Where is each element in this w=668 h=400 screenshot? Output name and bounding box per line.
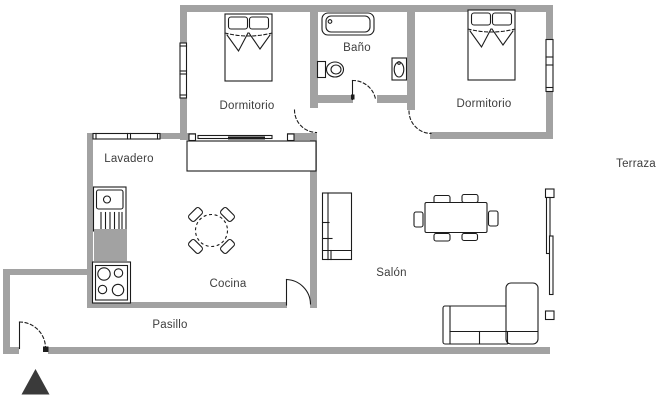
room-label-bano: Baño [343, 42, 371, 54]
washbasin-icon [392, 58, 407, 80]
round-table-chairs-icon [188, 207, 236, 255]
cabinet-icon [323, 193, 352, 260]
double-bed-icon [468, 10, 515, 80]
dining-table-chairs-icon [414, 195, 498, 242]
counter-block [94, 229, 127, 261]
kitchen-sink-icon [94, 187, 127, 231]
door-swing-icon [409, 111, 431, 134]
room-label-dormitorio-2: Dormitorio [456, 98, 511, 110]
toilet-icon [318, 62, 344, 78]
kitchen-counter-icon [187, 141, 316, 171]
door-swing-icon [20, 322, 49, 352]
door-swing-icon [287, 280, 311, 306]
room-label-dormitorio-1: Dormitorio [219, 100, 274, 112]
door-swing-icon [351, 80, 376, 99]
sliding-door-icon [189, 133, 294, 141]
plan-graphics [0, 0, 668, 400]
room-label-salon: Salón [376, 267, 406, 279]
window-icon [93, 134, 160, 140]
window-icon [546, 40, 553, 92]
floor-plan: Dormitorio Baño Dormitorio Terraza Lavad… [0, 0, 668, 400]
room-label-cocina: Cocina [210, 278, 247, 290]
room-label-terraza: Terraza [616, 158, 656, 170]
terrace-slider-icon [546, 189, 555, 320]
room-label-pasillo: Pasillo [152, 319, 187, 331]
door-swing-icon [295, 110, 317, 133]
window-icon [180, 43, 187, 98]
north-arrow-icon [22, 369, 50, 395]
stove-icon [93, 262, 131, 303]
room-label-lavadero: Lavadero [104, 153, 154, 165]
corner-sofa-icon [443, 283, 538, 344]
bathtub-icon [322, 13, 374, 35]
double-bed-icon [225, 14, 272, 81]
